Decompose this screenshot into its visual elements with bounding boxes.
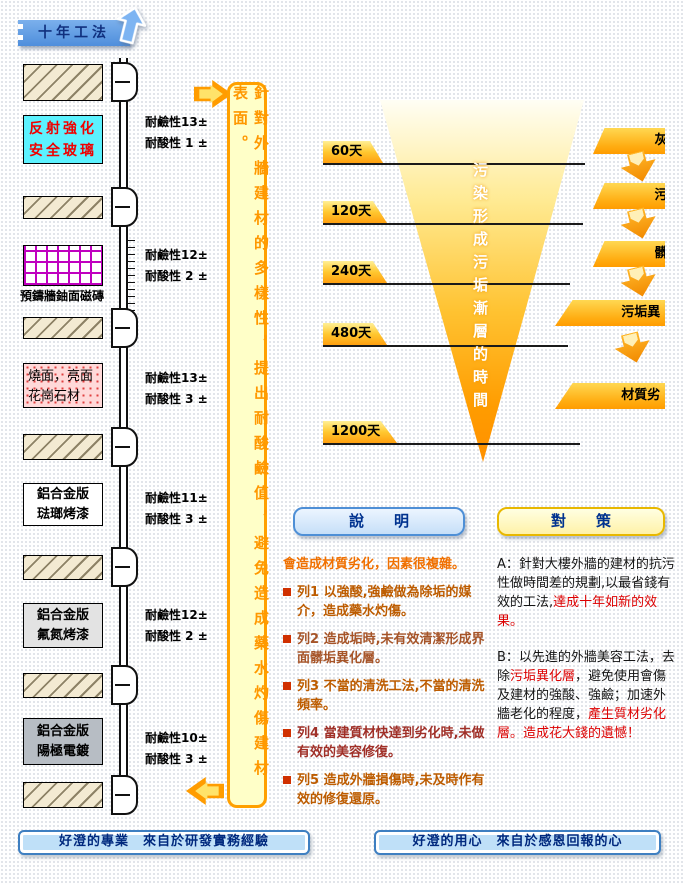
funnel-title: 污染形成污垢漸層的時間: [470, 162, 491, 415]
square-bullet-icon: [283, 729, 291, 737]
explanation-item: 列4 當建質材快達到劣化時,未做有效的美容修復。: [283, 724, 491, 762]
explanation-button[interactable]: 說 明: [293, 507, 465, 536]
layer-tag-dust: 灰塵層: [593, 128, 665, 154]
mullion-clamp: [111, 665, 138, 705]
wall-sample-granite: 燒面，亮面花崗石材: [23, 363, 103, 408]
wall-sample-hatch: [23, 555, 103, 580]
rating-pair: 耐鹼性11± 耐酸性 3 ±: [145, 488, 219, 530]
time-line: [323, 223, 583, 225]
countermeasure-b: B：以先進的外牆美容工法，去除污垢異化層，避免使用會傷及建材的強酸、強鹼；加速外…: [497, 648, 677, 743]
wall-sample-hatch: [23, 196, 103, 219]
alkali-rating: 耐鹼性10±: [145, 728, 219, 749]
vertical-message-text: 針對外牆建材的多樣性，提出耐酸鹼值，避免造成藥水灼傷建材表面。: [230, 85, 272, 805]
down-arrow-icon: [618, 205, 660, 243]
ribbon-up-arrow-icon: [108, 0, 153, 48]
countermeasure-button[interactable]: 對 策: [497, 507, 665, 536]
rating-pair: 耐鹼性10± 耐酸性 3 ±: [145, 728, 219, 770]
acid-rating: 耐酸性 3 ±: [145, 389, 219, 410]
down-arrow-icon: [618, 263, 660, 301]
mullion-clamp: [111, 427, 138, 467]
vertical-message-box: 針對外牆建材的多樣性，提出耐酸鹼值，避免造成藥水灼傷建材表面。: [227, 82, 267, 808]
square-bullet-icon: [283, 682, 291, 690]
down-arrow-icon: [612, 329, 654, 367]
mullion-ruler-ticks: [128, 240, 135, 312]
acid-rating: 耐酸性 2 ±: [145, 266, 219, 287]
wall-sample-hatch: [23, 64, 103, 101]
acid-rating: 耐酸性 1 ±: [145, 133, 219, 154]
mullion-clamp: [111, 187, 138, 227]
wall-sample-hatch: [23, 317, 103, 339]
mullion-clamp: [111, 62, 138, 102]
explanation-item: 列5 造成外牆損傷時,未及時作有效的修復還原。: [283, 771, 491, 809]
time-tag-1200d: 1200天: [323, 421, 397, 443]
wall-sample-anodized-panel: 鋁合金版 陽極電鍍: [23, 718, 103, 765]
square-bullet-icon: [283, 635, 291, 643]
explanation-item: 列3 不當的清洗工法,不當的清洗頻率。: [283, 677, 491, 715]
acid-rating: 耐酸性 3 ±: [145, 749, 219, 770]
wall-sample-safety-glass: 反射強化 安全玻璃: [23, 115, 103, 164]
time-line: [323, 283, 570, 285]
explanation-item: 列2 造成垢時,未有效清潔形成界面髒垢異化層。: [283, 630, 491, 668]
footer-banner-professional: 好澄的專業 來自於研發實務經驗: [18, 830, 310, 855]
countermeasure-a: A：針對大樓外牆的建材的抗污性做時間差的規劃,以最省錢有效的工法,達成十年如新的…: [497, 555, 677, 631]
explanation-section: 會造成材質劣化，因素很複雜。 列1 以強酸,強鹼做為除垢的媒介，造成藥水灼傷。 …: [283, 553, 491, 818]
countermeasure-b-highlight1: 污垢異化層: [510, 669, 575, 684]
wall-sample-hatch: [23, 434, 103, 460]
wall-sample-enamel-panel: 鋁合金版 琺瑯烤漆: [23, 483, 103, 526]
time-line: [323, 443, 580, 445]
layer-tag-grime: 髒垢層: [593, 241, 665, 267]
rating-pair: 耐鹼性13± 耐酸性 1 ±: [145, 112, 219, 154]
time-tag-480d: 480天: [323, 323, 387, 345]
alkali-rating: 耐鹼性12±: [145, 245, 219, 266]
explanation-item-text: 列2 造成垢時,未有效清潔形成界面髒垢異化層。: [297, 632, 485, 666]
square-bullet-icon: [283, 776, 291, 784]
time-line: [323, 163, 585, 165]
explanation-item: 列1 以強酸,強鹼做為除垢的媒介，造成藥水灼傷。: [283, 583, 491, 621]
explanation-heading: 會造成材質劣化，因素很複雜。: [283, 553, 491, 572]
footer-banner-dedication: 好澄的用心 來自於感恩回報的心: [374, 830, 661, 855]
glazed-tile-caption: 預鑄牆鈾面磁磚: [20, 287, 112, 304]
layer-tag-dirt-mutation: 污垢異化層: [555, 300, 665, 326]
rating-pair: 耐鹼性12± 耐酸性 2 ±: [145, 245, 219, 287]
acid-rating: 耐酸性 3 ±: [145, 509, 219, 530]
time-tag-240d: 240天: [323, 261, 387, 283]
wall-sample-hatch: [23, 782, 103, 808]
wall-sample-hatch: [23, 673, 103, 698]
mullion-clamp: [111, 547, 138, 587]
layer-tag-pollution: 污染層: [593, 183, 665, 209]
rating-pair: 耐鹼性13± 耐酸性 3 ±: [145, 368, 219, 410]
time-tag-60d: 60天: [323, 141, 383, 163]
time-tag-120d: 120天: [323, 201, 387, 223]
alkali-rating: 耐鹼性12±: [145, 605, 219, 626]
explanation-item-text: 列4 當建質材快達到劣化時,未做有效的美容修復。: [297, 726, 485, 760]
layer-tag-degradation: 材質劣化層: [555, 383, 665, 409]
explanation-item-text: 列1 以強酸,強鹼做為除垢的媒介，造成藥水灼傷。: [297, 585, 472, 619]
explanation-item-text: 列5 造成外牆損傷時,未及時作有效的修復還原。: [297, 773, 485, 807]
alkali-rating: 耐鹼性13±: [145, 112, 219, 133]
alkali-rating: 耐鹼性11±: [145, 488, 219, 509]
countermeasure-section: A：針對大樓外牆的建材的抗污性做時間差的規劃,以最省錢有效的工法,達成十年如新的…: [497, 555, 677, 743]
acid-rating: 耐酸性 2 ±: [145, 626, 219, 647]
arrow-left-icon: [186, 777, 224, 805]
rating-pair: 耐鹼性12± 耐酸性 2 ±: [145, 605, 219, 647]
wall-sample-glazed-tile: [23, 245, 103, 286]
time-line: [323, 345, 568, 347]
explanation-item-text: 列3 不當的清洗工法,不當的清洗頻率。: [297, 679, 485, 713]
mullion-clamp: [111, 775, 138, 815]
mullion-clamp: [111, 308, 138, 348]
square-bullet-icon: [283, 588, 291, 596]
alkali-rating: 耐鹼性13±: [145, 368, 219, 389]
wall-sample-fluorine-panel: 鋁合金版 氟氮烤漆: [23, 603, 103, 648]
page: 十年工法 反射強化 安全玻璃 預鑄牆鈾面磁磚 燒面，亮面花崗石材 鋁合金版 琺瑯…: [0, 0, 684, 883]
